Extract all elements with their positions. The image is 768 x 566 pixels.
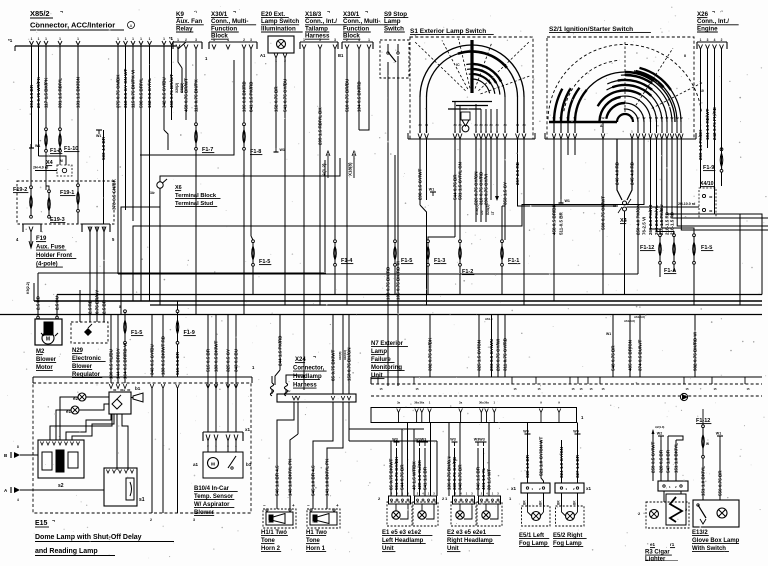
svg-text:IC: IC	[456, 63, 460, 67]
svg-text:X4/10: X4/10	[700, 181, 714, 187]
svg-text:1: 1	[31, 37, 33, 41]
svg-text:115-0.75 BK/PK VI: 115-0.75 BK/PK VI	[130, 70, 135, 108]
svg-text:Unit: Unit	[447, 546, 459, 552]
svg-text:BR: BR	[523, 500, 527, 505]
svg-text:*1: *1	[169, 36, 174, 41]
svg-text:W5: W5	[573, 430, 578, 434]
svg-text:244-1.5 PK/RD: 244-1.5 PK/RD	[277, 335, 282, 366]
svg-text:W1: W1	[96, 134, 101, 138]
svg-text:151-1.0 BK/YL: 151-1.0 BK/YL	[700, 466, 705, 496]
svg-text:M2: M2	[36, 349, 45, 355]
svg-text:X18(10): X18(10)	[343, 350, 347, 360]
svg-text:II: II	[684, 54, 686, 58]
svg-text:F1-9: F1-9	[184, 330, 195, 336]
svg-text:3: 3	[195, 38, 197, 42]
svg-text:15: 15	[747, 387, 751, 391]
svg-text:W1: W1	[280, 148, 285, 152]
svg-text:W3: W3	[479, 438, 484, 442]
svg-text:343-0.5 BU: 343-0.5 BU	[233, 349, 238, 372]
svg-text:W/ Aspirator: W/ Aspirator	[194, 502, 230, 508]
svg-text:15: 15	[514, 387, 518, 391]
svg-text:W1: W1	[429, 188, 434, 192]
svg-text:A61(4.6): A61(4.6)	[624, 319, 635, 323]
svg-text:311-0.75 GY/RD: 311-0.75 GY/RD	[502, 337, 507, 371]
svg-text:W5: W5	[523, 430, 528, 434]
svg-text:30-1.5 WT: 30-1.5 WT	[486, 469, 491, 490]
svg-text:2.5 RD: 2.5 RD	[35, 295, 40, 310]
svg-text:541-1.5 BR: 541-1.5 BR	[422, 466, 427, 490]
svg-text:461-1.5 YL: 461-1.5 YL	[481, 468, 486, 490]
svg-text:194-1.5 BR: 194-1.5 BR	[29, 84, 34, 108]
svg-text:501-0.75 GY/BK: 501-0.75 GY/BK	[394, 456, 399, 490]
svg-text:X6: X6	[175, 185, 182, 191]
svg-text:257-2.5 RD: 257-2.5 RD	[515, 161, 520, 185]
svg-text:Fog Lamp: Fog Lamp	[519, 541, 548, 547]
svg-text:1: 1	[77, 37, 79, 41]
svg-text:15: 15	[538, 387, 542, 391]
svg-text:324-1.0 GY/GN: 324-1.0 GY/GN	[559, 447, 564, 478]
svg-text:30: 30	[479, 123, 483, 127]
svg-text:164-0.5 BR/RD VI: 164-0.5 BR/RD VI	[122, 343, 127, 379]
svg-text:N29: N29	[72, 348, 84, 354]
svg-text:Electronic: Electronic	[72, 356, 102, 362]
svg-text:Harness: Harness	[305, 33, 330, 40]
svg-text:Lamp: Lamp	[371, 349, 387, 355]
svg-text:N7 Exterior: N7 Exterior	[371, 341, 404, 347]
svg-text:1: 1	[132, 37, 134, 41]
svg-text:Blower: Blower	[36, 357, 57, 363]
svg-text:3: 3	[193, 518, 195, 522]
svg-text:s1: s1	[139, 497, 145, 503]
svg-text:Unit: Unit	[371, 373, 383, 379]
svg-text:342-0.5 GY/BU: 342-0.5 GY/BU	[161, 77, 166, 108]
svg-text:Horn 2: Horn 2	[261, 546, 281, 552]
svg-text:BK: BK	[573, 500, 577, 505]
svg-text:302-0.75 GY/BK: 302-0.75 GY/BK	[427, 337, 432, 371]
svg-text:Left Headlamp: Left Headlamp	[382, 538, 424, 544]
svg-text:Terminal Stud: Terminal Stud	[175, 201, 214, 207]
svg-text:F1-5: F1-5	[259, 259, 270, 265]
svg-text:F1-8: F1-8	[250, 149, 261, 155]
svg-text:0.75 BR/GY: 0.75 BR/GY	[94, 290, 99, 314]
svg-text:1: 1	[140, 37, 142, 41]
svg-text:Engine: Engine	[697, 25, 718, 32]
svg-text:E5/1 Left: E5/1 Left	[519, 533, 544, 539]
svg-text:15: 15	[686, 387, 690, 391]
svg-text:15: 15	[714, 387, 718, 391]
svg-text:F1-7: F1-7	[202, 147, 213, 153]
svg-text:130-0.5 YL/BU: 130-0.5 YL/BU	[108, 349, 113, 379]
svg-text:Harness: Harness	[293, 383, 317, 389]
svg-text:Terminal Block: Terminal Block	[175, 193, 217, 199]
svg-text:4: 4	[358, 38, 360, 42]
svg-text:and Reading Lamp: and Reading Lamp	[35, 548, 98, 555]
svg-text:30a: 30a	[120, 388, 125, 392]
svg-text:Glove Box Lamp: Glove Box Lamp	[692, 538, 740, 544]
svg-text:330-0.75 GY/RD: 330-0.75 GY/RD	[452, 456, 457, 490]
svg-text:¬: ¬	[327, 9, 330, 15]
svg-text:With Switch: With Switch	[692, 546, 726, 552]
svg-text:560-0.75 GN/WT: 560-0.75 GN/WT	[600, 196, 605, 230]
svg-text:F1-2: F1-2	[462, 269, 473, 275]
svg-text:E5/2 Right: E5/2 Right	[553, 533, 582, 539]
svg-text:+: +	[336, 503, 339, 508]
svg-text:152-0.75 BR: 152-0.75 BR	[273, 86, 278, 112]
svg-text:A(1.2): A(1.2)	[321, 163, 326, 176]
svg-text:X2/4(3): X2/4(3)	[486, 205, 490, 215]
svg-text:982-0.75 BK/RD VI: 982-0.75 BK/RD VI	[692, 332, 697, 371]
svg-text:A2(1.3): A2(1.3)	[655, 425, 664, 429]
svg-text:X85/2: X85/2	[30, 9, 50, 18]
svg-text:40-1.5 WT/BK: 40-1.5 WT/BK	[411, 460, 416, 490]
svg-text:293-0.5 GY/WN: 293-0.5 GY/WN	[489, 339, 494, 371]
svg-text:Blower: Blower	[194, 510, 215, 516]
svg-text:Temp. Sensor: Temp. Sensor	[194, 494, 234, 500]
svg-text:343-0.75 BR: 343-0.75 BR	[457, 464, 462, 490]
svg-text:1: 1	[368, 38, 370, 42]
svg-text:S2/1 Ignition/Starter Switch: S2/1 Ignition/Starter Switch	[549, 26, 633, 33]
svg-text:15: 15	[590, 387, 594, 391]
svg-text:293-0.75 GY/VI: 293-0.75 GY/VI	[483, 174, 488, 205]
svg-text:X18(8): X18(8)	[347, 162, 352, 176]
svg-text:K9(2.2): K9(2.2)	[26, 281, 30, 294]
svg-text:151-1.0 BK/YL: 151-1.0 BK/YL	[673, 443, 678, 473]
svg-text:1: 1	[117, 37, 119, 41]
svg-text:F19: F19	[36, 236, 47, 242]
svg-text:76-2.5 VI: 76-2.5 VI	[641, 217, 646, 235]
svg-text:378-0.5 GN/BK: 378-0.5 GN/BK	[111, 178, 116, 210]
svg-text:x1: x1	[511, 486, 517, 491]
svg-text:116-0.75 BK/PK: 116-0.75 BK/PK	[193, 78, 198, 112]
svg-text:327-1.0 BR: 327-1.0 BR	[575, 454, 580, 478]
svg-text:1T: 1T	[491, 211, 495, 215]
svg-text:1: 1	[45, 37, 47, 41]
svg-text:15: 15	[572, 387, 576, 391]
svg-text:e1: e1	[650, 542, 656, 547]
svg-text:Conn., Int./: Conn., Int./	[697, 18, 729, 25]
svg-text:Connector,: Connector,	[293, 366, 325, 372]
svg-text:15: 15	[416, 387, 420, 391]
svg-text:(4-pole): (4-pole)	[36, 262, 58, 268]
svg-text:1: 1	[59, 37, 61, 41]
svg-text:325-1.5 GY/GN: 325-1.5 GY/GN	[476, 340, 481, 371]
svg-text:117-1.5 BK/PK: 117-1.5 BK/PK	[43, 77, 48, 108]
svg-text:1: 1	[38, 37, 40, 41]
svg-text:b1: b1	[135, 386, 141, 391]
svg-text:¬: ¬	[233, 9, 236, 15]
svg-text:r1: r1	[670, 542, 675, 547]
svg-text:2: 2	[150, 518, 152, 522]
svg-text:30: 30	[458, 123, 462, 127]
svg-text:Conn., Multi-: Conn., Multi-	[211, 18, 248, 25]
svg-text:141-1.0 BK/YL PK: 141-1.0 BK/YL PK	[324, 458, 329, 496]
svg-text:544-0.75 BR: 544-0.75 BR	[399, 464, 404, 490]
svg-text:Blower: Blower	[72, 364, 93, 370]
svg-text:353-1.5 GY: 353-1.5 GY	[502, 182, 507, 205]
svg-text:W1: W1	[565, 199, 570, 203]
svg-text:Conn., Multi-: Conn., Multi-	[343, 18, 380, 25]
svg-text:S1 Exterior Lamp Switch: S1 Exterior Lamp Switch	[410, 28, 486, 35]
svg-text:8: 8	[119, 305, 121, 309]
svg-text:F1-4: F1-4	[341, 258, 353, 264]
svg-text:Tailamp: Tailamp	[305, 25, 328, 32]
svg-text:Switch: Switch	[384, 25, 404, 32]
svg-text:F1-10: F1-10	[64, 146, 78, 152]
svg-text:4: 4	[17, 498, 19, 502]
svg-text:E2 e3 e5 e2e1: E2 e3 e5 e2e1	[447, 530, 487, 536]
svg-text:¬: ¬	[313, 354, 316, 360]
svg-text:F1-5: F1-5	[131, 330, 142, 336]
svg-text:W1: W1	[716, 432, 721, 436]
svg-text:515-0.5 BR: 515-0.5 BR	[175, 351, 180, 375]
svg-text:W3: W3	[450, 438, 455, 442]
svg-text:W1: W1	[606, 332, 611, 336]
svg-text:30: 30	[495, 123, 499, 127]
svg-text:X18/3: X18/3	[305, 11, 322, 18]
svg-text:A1: A1	[260, 53, 266, 58]
svg-text:1: 1	[213, 38, 215, 42]
svg-text:2.5 BR: 2.5 BR	[101, 299, 106, 314]
svg-text:30: 30	[113, 388, 117, 392]
svg-text:30: 30	[709, 195, 713, 199]
svg-text:515-0.5 BR: 515-0.5 BR	[205, 348, 210, 372]
svg-text:458-0.75 BR/WT: 458-0.75 BR/WT	[183, 78, 188, 112]
svg-text:30: 30	[418, 123, 422, 127]
svg-text:458-0.75 BR/WT: 458-0.75 BR/WT	[169, 74, 174, 108]
svg-text:Tone: Tone	[306, 538, 321, 544]
svg-text:3a: 3a	[397, 401, 401, 405]
svg-text:4: 4	[227, 38, 229, 42]
svg-text:a1: a1	[193, 462, 199, 467]
svg-text:A61(4.6): A61(4.6)	[634, 315, 645, 319]
svg-text:104-0.5 BK/RD: 104-0.5 BK/RD	[356, 80, 361, 112]
svg-text:Horn 1: Horn 1	[306, 546, 326, 552]
svg-text:M: M	[211, 462, 215, 467]
svg-text:30: 30	[484, 123, 488, 127]
svg-text:152-0.5 GY/YL: 152-0.5 GY/YL	[147, 78, 152, 108]
svg-text:318-0.5 GY GN WT: 318-0.5 GY GN WT	[123, 69, 128, 108]
svg-text:M: M	[46, 337, 50, 343]
svg-text:X26(2): X26(2)	[175, 83, 179, 93]
svg-text:E13/2: E13/2	[692, 530, 708, 536]
svg-text:Illumination: Illumination	[261, 25, 296, 32]
svg-text:S9 Stop: S9 Stop	[384, 11, 407, 18]
svg-text:30: 30	[127, 388, 131, 392]
svg-text:B10/4 In-Car: B10/4 In-Car	[194, 486, 230, 492]
svg-text:301-1.5 RD/YL: 301-1.5 RD/YL	[57, 78, 62, 108]
svg-text:30: 30	[453, 123, 457, 127]
svg-text:15: 15	[580, 387, 584, 391]
svg-text:X24: X24	[295, 357, 306, 363]
svg-text:F19-2: F19-2	[13, 187, 27, 193]
svg-text:+: +	[292, 503, 295, 508]
svg-text:Unit: Unit	[382, 546, 394, 552]
svg-text:131-1.5 BK/GN: 131-1.5 BK/GN	[75, 77, 80, 108]
svg-text:183-0.5 BK/WT: 183-0.5 BK/WT	[213, 340, 218, 372]
svg-text:*1: *1	[8, 38, 13, 43]
svg-text:Aux. Fan: Aux. Fan	[176, 18, 202, 25]
svg-text:Holder Front: Holder Front	[36, 253, 72, 259]
svg-text:30: 30	[516, 123, 520, 127]
svg-text:X18(8): X18(8)	[338, 352, 342, 360]
svg-text:BR: BR	[557, 500, 561, 505]
svg-text:F1-9: F1-9	[703, 165, 714, 171]
svg-text:841-1.5 PK/RD: 841-1.5 PK/RD	[248, 81, 253, 112]
svg-text:1: 1	[177, 38, 179, 42]
svg-text:1: 1	[125, 37, 127, 41]
svg-text:E19-3: E19-3	[50, 217, 65, 223]
svg-text:X26: X26	[697, 11, 709, 18]
svg-text:547-1.0 BR: 547-1.0 BR	[665, 449, 670, 473]
svg-text:E20 Ext.: E20 Ext.	[261, 11, 285, 18]
svg-text:E1 e5 e3 e1e2: E1 e5 e3 e1e2	[382, 530, 422, 536]
svg-text:F1-12: F1-12	[640, 245, 654, 251]
svg-text:Relay: Relay	[176, 25, 193, 32]
svg-text:b1: b1	[246, 462, 252, 467]
svg-text:Lighter: Lighter	[645, 557, 666, 562]
svg-text:W: W	[706, 442, 709, 446]
svg-text:F1-3: F1-3	[434, 258, 445, 264]
svg-text:F19-1: F19-1	[60, 190, 74, 196]
svg-text:Connector, ACC/Interior: Connector, ACC/Interior	[30, 21, 115, 30]
svg-text:Function: Function	[211, 25, 237, 32]
svg-text:¬: ¬	[194, 9, 197, 15]
svg-text:458-0.5 BR/BK: 458-0.5 BR/BK	[551, 203, 556, 235]
svg-text:2: 2	[185, 38, 187, 42]
svg-text:511-0.5 BR: 511-0.5 BR	[558, 211, 563, 235]
svg-text:Conn., Int./: Conn., Int./	[305, 18, 337, 25]
svg-text:8: 8	[17, 445, 19, 449]
svg-text:85-0.75 BK/WT: 85-0.75 BK/WT	[388, 458, 393, 490]
svg-text:F1-5: F1-5	[401, 258, 412, 264]
svg-text:Fog Lamp: Fog Lamp	[553, 541, 582, 547]
svg-text:2: 2	[721, 38, 723, 42]
svg-text:531-1.5 GY/YL GN: 531-1.5 GY/YL GN	[457, 162, 462, 200]
svg-text:1: 1	[163, 37, 165, 41]
svg-text:485-0.5 BR/GN: 485-0.5 BR/GN	[627, 340, 632, 371]
svg-text:15: 15	[602, 387, 606, 391]
svg-text:H1/1 Two: H1/1 Two	[261, 530, 287, 536]
svg-text:34r: 34r	[150, 191, 156, 195]
svg-text:246-4.0 RD: 246-4.0 RD	[614, 161, 619, 185]
svg-text:Motor: Motor	[36, 365, 53, 371]
svg-text:R3 Cigar: R3 Cigar	[645, 550, 670, 556]
svg-text:¬: ¬	[52, 518, 55, 524]
svg-text:30: 30	[489, 123, 493, 127]
svg-text:153-0.75 BK/GN: 153-0.75 BK/GN	[346, 347, 351, 381]
svg-text:X18/(5): X18/(5)	[475, 205, 479, 215]
svg-text:546-1.0 BR 4.5: 546-1.0 BR 4.5	[274, 465, 279, 496]
svg-text:250-1.5 PK/BK: 250-1.5 PK/BK	[698, 129, 703, 160]
svg-text:1/5: 1/5	[480, 210, 484, 215]
svg-text:184-1.5 RD/WT: 184-1.5 RD/WT	[705, 108, 710, 140]
svg-text:328-1.0 BR: 328-1.0 BR	[525, 454, 530, 478]
svg-text:x1: x1	[245, 427, 251, 432]
svg-text:346-1.5 BR: 346-1.5 BR	[475, 466, 480, 490]
svg-text:2H-10.0 rd: 2H-10.0 rd	[678, 202, 695, 206]
svg-text:5: 5	[319, 38, 321, 42]
svg-text:3: 3	[707, 38, 709, 42]
svg-text:85-0.75 BK/WT: 85-0.75 BK/WT	[330, 349, 335, 381]
svg-text:508-0.5 BR/YL: 508-0.5 BR/YL	[138, 78, 143, 108]
svg-text:545-1.0 BR 4.5: 545-1.0 BR 4.5	[310, 465, 315, 496]
svg-text:428-1.5 YL/BK: 428-1.5 YL/BK	[417, 459, 422, 490]
svg-text:106-0.8 BK/RD: 106-0.8 BK/RD	[241, 80, 246, 112]
svg-text:3: 3	[250, 38, 252, 42]
svg-text:2: 2	[346, 38, 348, 42]
svg-text:1: 1	[303, 38, 305, 42]
svg-text:¬: ¬	[712, 9, 715, 15]
svg-text:K9: K9	[176, 11, 184, 18]
svg-text:533-4.0 BR: 533-4.0 BR	[101, 136, 106, 160]
svg-text:30: 30	[522, 123, 526, 127]
svg-text:541-0.75 GY/BU: 541-0.75 GY/BU	[282, 79, 287, 112]
svg-text:15: 15	[380, 387, 384, 391]
svg-text:30: 30	[425, 123, 429, 127]
svg-text:−: −	[263, 503, 266, 508]
svg-text:W1: W1	[35, 144, 40, 148]
svg-text:548-0.75 BR: 548-0.75 BR	[610, 345, 615, 371]
svg-text:36a: 36a	[484, 401, 489, 405]
svg-text:Right Headlamp: Right Headlamp	[447, 538, 493, 544]
svg-text:¬: ¬	[365, 9, 368, 15]
svg-text:−: −	[307, 503, 310, 508]
svg-text:29-0.75 WT/PK: 29-0.75 WT/PK	[36, 76, 41, 108]
svg-text:144-0.5 BR/GY: 144-0.5 BR/GY	[115, 348, 120, 379]
svg-text:Tone: Tone	[261, 538, 276, 544]
svg-text:2.5 BU: 2.5 BU	[54, 296, 59, 310]
svg-text:30: 30	[474, 123, 478, 127]
svg-text:4: 4	[714, 38, 716, 42]
svg-text:136-0.75 BK/GN: 136-0.75 BK/GN	[446, 456, 451, 490]
svg-text:1: 1	[149, 37, 151, 41]
svg-text:Failure: Failure	[371, 357, 391, 363]
svg-text:556-0.75 BR: 556-0.75 BR	[717, 470, 722, 496]
svg-text:242-0.75 PK/RD: 242-0.75 PK/RD	[712, 106, 717, 140]
svg-text:Function: Function	[343, 25, 369, 32]
svg-text:143-1.0 BK/YL PK: 143-1.0 BK/YL PK	[287, 458, 292, 496]
svg-text:521-1.0 GY/GN WT: 521-1.0 GY/GN WT	[538, 436, 543, 476]
svg-text:2.5 RD: 2.5 RD	[87, 299, 92, 314]
svg-text:325-0.5 GY: 325-0.5 GY	[225, 349, 230, 372]
svg-text:2: 2	[243, 38, 245, 42]
svg-text:510-0.75 BR/BU: 510-0.75 BR/BU	[344, 79, 349, 112]
svg-text:BK: BK	[539, 500, 543, 505]
svg-text:X30/1: X30/1	[343, 11, 360, 18]
svg-text:A61.8: A61.8	[485, 317, 493, 321]
svg-text:209-1.5 RD/YL BK: 209-1.5 RD/YL BK	[317, 107, 322, 145]
svg-text:Lamp Switch: Lamp Switch	[261, 18, 299, 25]
svg-text:W2: W2	[657, 432, 662, 436]
svg-text:Monitoring: Monitoring	[371, 365, 402, 371]
svg-text:1: 1	[700, 38, 702, 42]
svg-text:298-1.5 GY/WT: 298-1.5 GY/WT	[417, 168, 422, 200]
svg-text:259-0.5 GY/WT: 259-0.5 GY/WT	[650, 441, 655, 473]
svg-text:x1: x1	[586, 486, 592, 491]
svg-text:3a: 3a	[459, 401, 463, 405]
svg-text:Dome Lamp with Shut-Off Delay: Dome Lamp with Shut-Off Delay	[35, 534, 142, 541]
svg-text:s2: s2	[58, 483, 64, 489]
svg-text:H1 Two: H1 Two	[306, 530, 327, 536]
svg-text:36a: 36a	[419, 401, 424, 405]
svg-text:296-0.75 GY/WI: 296-0.75 GY/WI	[495, 339, 500, 371]
svg-text:30: 30	[709, 209, 713, 213]
svg-text:3: 3	[334, 38, 336, 42]
svg-text:X30/1: X30/1	[211, 11, 228, 18]
svg-text:Aux. Fuse: Aux. Fuse	[36, 245, 65, 251]
svg-text:¬: ¬	[60, 9, 63, 15]
svg-text:B1: B1	[338, 53, 344, 58]
